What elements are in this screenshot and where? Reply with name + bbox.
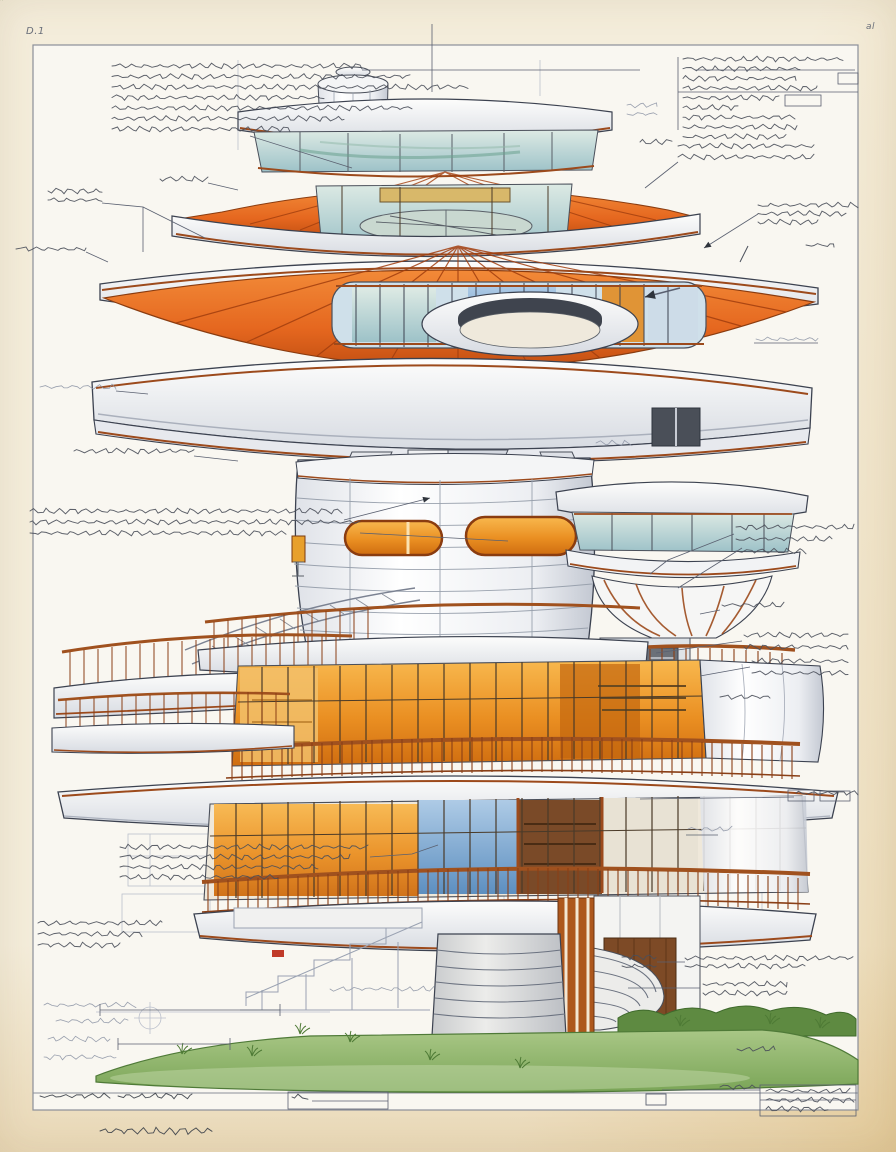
handwritten-note xyxy=(330,986,434,991)
handwritten-note xyxy=(640,139,672,144)
handwritten-note xyxy=(744,644,848,649)
handwritten-note xyxy=(120,854,350,860)
handwritten-note xyxy=(30,508,342,514)
annotation-box xyxy=(788,790,814,801)
handwritten-note xyxy=(766,1106,828,1112)
leader-arrowhead xyxy=(645,290,656,299)
handwritten-note xyxy=(766,1088,850,1093)
handwritten-note xyxy=(40,384,116,389)
leader-line xyxy=(370,845,438,857)
handwritten-note xyxy=(74,448,194,454)
handwritten-note xyxy=(758,219,818,224)
handwritten-note xyxy=(16,247,86,251)
leader-line xyxy=(640,797,794,799)
handwritten-note xyxy=(720,1085,760,1090)
leader-line xyxy=(700,610,720,614)
handwritten-note xyxy=(38,942,120,948)
drawing-sheet: D.1 al xyxy=(0,0,896,1152)
leader-line xyxy=(700,667,750,676)
leader-line xyxy=(645,162,678,188)
handwritten-note xyxy=(683,76,796,82)
handwritten-note xyxy=(627,113,657,116)
handwritten-note xyxy=(683,85,817,91)
leader-line xyxy=(344,498,430,520)
leader-line xyxy=(86,252,108,262)
leader-line xyxy=(250,136,352,168)
handwritten-note xyxy=(627,103,657,108)
handwritten-note xyxy=(622,964,656,967)
handwritten-note xyxy=(688,826,732,831)
handwritten-note xyxy=(112,74,410,80)
leader-line xyxy=(102,203,143,252)
handwritten-note xyxy=(112,126,290,132)
handwritten-note xyxy=(112,84,468,90)
annotation-layer xyxy=(0,0,896,1152)
handwritten-note xyxy=(683,66,800,72)
handwritten-note xyxy=(40,1093,110,1098)
handwritten-note xyxy=(720,695,770,699)
handwritten-note xyxy=(722,602,784,607)
corner-note-label: al xyxy=(866,22,875,32)
handwritten-note xyxy=(683,56,843,62)
handwritten-note xyxy=(44,1002,136,1007)
handwritten-note xyxy=(112,63,362,69)
leader-arrowhead xyxy=(422,497,430,503)
handwritten-note xyxy=(678,143,814,149)
handwritten-note xyxy=(118,1093,192,1099)
leader-line xyxy=(116,391,148,394)
leader-line xyxy=(194,456,238,461)
handwritten-note xyxy=(683,105,738,111)
handwritten-note xyxy=(683,124,797,130)
handwritten-note xyxy=(30,519,360,525)
handwritten-note xyxy=(44,1055,116,1060)
leader-line xyxy=(650,534,734,574)
leader-line xyxy=(656,641,742,653)
handwritten-note xyxy=(758,211,846,217)
handwritten-note xyxy=(160,176,208,181)
handwritten-note xyxy=(703,990,787,996)
handwritten-note xyxy=(100,1127,212,1134)
handwritten-note xyxy=(758,202,858,207)
handwritten-note xyxy=(683,95,779,101)
handwritten-note xyxy=(683,115,795,120)
handwritten-note xyxy=(292,1094,308,1099)
handwritten-note xyxy=(736,524,854,530)
handwritten-note xyxy=(120,874,278,880)
handwritten-note xyxy=(796,791,858,795)
handwritten-note xyxy=(48,1036,110,1042)
leader-line xyxy=(360,533,508,541)
handwritten-note xyxy=(736,548,806,554)
handwritten-note xyxy=(622,955,656,960)
handwritten-note xyxy=(112,105,412,111)
leader-line xyxy=(143,207,205,238)
handwritten-note xyxy=(112,95,324,101)
handwritten-note xyxy=(685,963,805,969)
handwritten-note xyxy=(678,154,814,160)
leader-line xyxy=(678,548,742,588)
handwritten-note xyxy=(120,844,368,850)
handwritten-note xyxy=(744,632,848,638)
handwritten-note xyxy=(685,955,853,961)
handwritten-note xyxy=(38,931,142,937)
handwritten-note xyxy=(48,198,102,202)
annotation-box xyxy=(288,1092,388,1109)
handwritten-note xyxy=(683,134,786,140)
handwritten-note xyxy=(120,864,318,870)
handwritten-note xyxy=(48,188,102,193)
handwritten-note xyxy=(56,1018,128,1023)
leader-arrowhead xyxy=(704,242,712,248)
annotation-box xyxy=(838,73,858,84)
handwritten-note xyxy=(38,920,162,925)
annotation-box xyxy=(785,95,821,106)
handwritten-note xyxy=(596,440,632,446)
leader-line xyxy=(208,183,238,190)
sheet-number-label: D.1 xyxy=(26,26,45,37)
handwritten-note xyxy=(756,337,818,341)
handwritten-note xyxy=(703,981,787,987)
handwritten-note xyxy=(737,1046,775,1051)
handwritten-note xyxy=(752,671,848,676)
handwritten-note xyxy=(112,116,344,122)
handwritten-note xyxy=(752,658,848,664)
handwritten-note xyxy=(806,244,834,248)
handwritten-note xyxy=(736,536,832,541)
leader-line xyxy=(704,214,758,248)
handwritten-note xyxy=(30,530,286,536)
